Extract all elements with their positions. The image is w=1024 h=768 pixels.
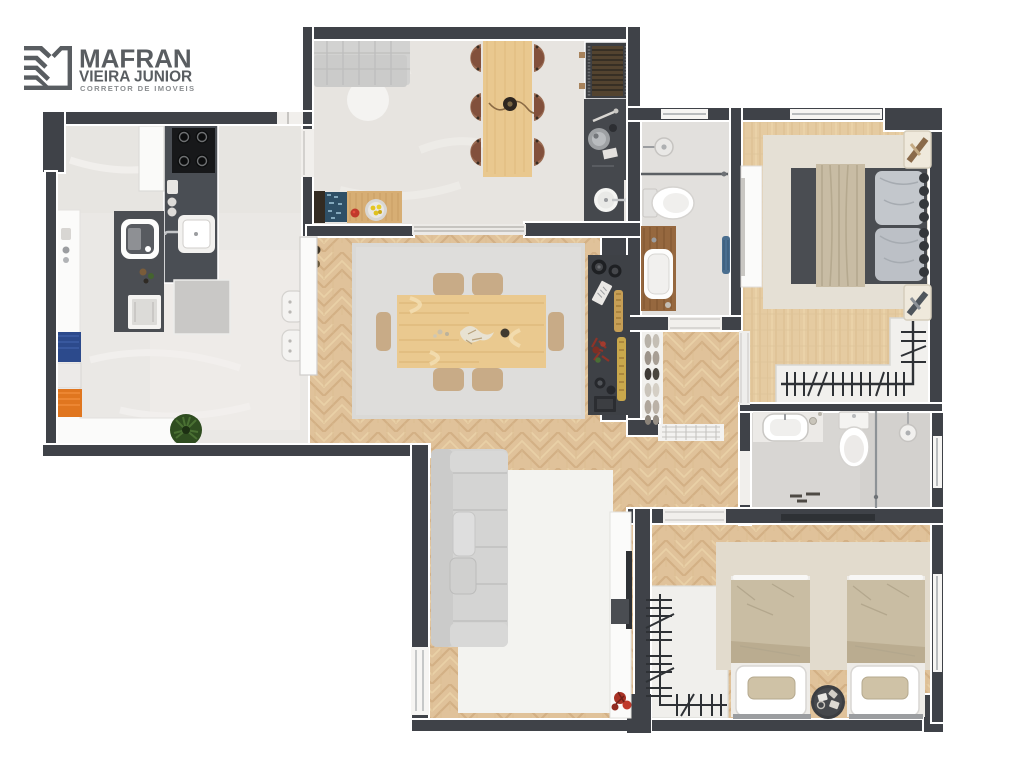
svg-text:VIEIRA JUNIOR: VIEIRA JUNIOR (79, 69, 192, 86)
svg-text:CORRETOR DE IMOVEIS: CORRETOR DE IMOVEIS (80, 84, 195, 93)
